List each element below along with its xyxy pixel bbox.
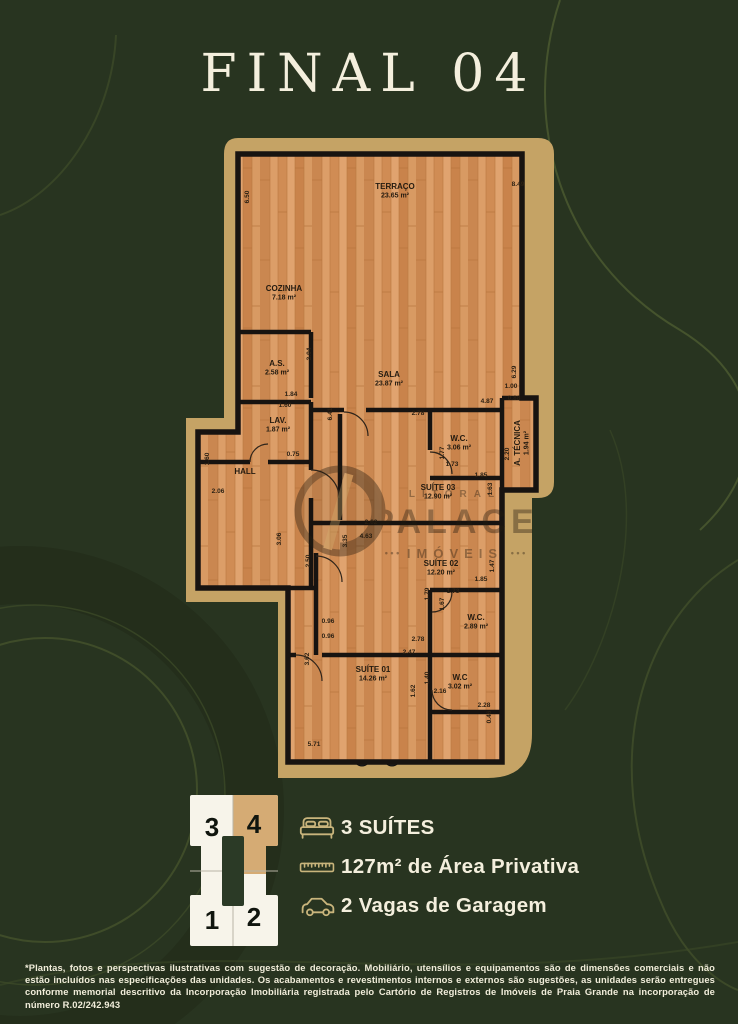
dimension-label: 5.71 bbox=[308, 741, 321, 748]
floor-plan-flyer: FINAL 04 bbox=[0, 0, 738, 1024]
dimension-label: 2.78 bbox=[412, 636, 425, 643]
dimension-label: 2.20 bbox=[504, 447, 511, 460]
dimension-label: 1.84 bbox=[285, 391, 298, 398]
dimension-label: 0.46 bbox=[486, 710, 493, 723]
feature-label: 2 Vagas de Garagem bbox=[341, 894, 547, 918]
dimension-label: 1.73 bbox=[447, 588, 460, 595]
dimension-label: 6.29 bbox=[511, 365, 518, 378]
watermark-brand-bottom: IMÓVEIS bbox=[407, 546, 503, 561]
dimension-label: 1.77 bbox=[439, 446, 446, 459]
bed-icon bbox=[299, 814, 341, 842]
room-label: HALL bbox=[234, 467, 255, 476]
dimension-label: 2.50 bbox=[305, 554, 312, 567]
dimension-label: 0.96 bbox=[322, 633, 335, 640]
dimension-label: 1.73 bbox=[446, 461, 459, 468]
feature-list: 3 SUÍTES 127m² de Área Privativa 2 Vag bbox=[299, 808, 579, 925]
unit-2-number: 2 bbox=[247, 902, 261, 932]
feature-label: 3 SUÍTES bbox=[341, 816, 435, 840]
dimension-label: 4.87 bbox=[481, 398, 494, 405]
dimension-label: 1.85 bbox=[475, 472, 488, 479]
dimension-label: 3.06 bbox=[276, 532, 283, 545]
unit-position-diagram: 3 4 1 2 bbox=[190, 795, 278, 946]
dimension-label: 6.50 bbox=[244, 190, 251, 203]
dimension-label: 2.28 bbox=[478, 702, 491, 709]
dimension-label: 1.60 bbox=[279, 402, 292, 409]
car-icon bbox=[299, 893, 341, 919]
feature-area: 127m² de Área Privativa bbox=[299, 847, 579, 886]
room-label: SALA23.87 m² bbox=[375, 370, 404, 388]
dimension-label: 8.49 bbox=[512, 181, 525, 188]
dimension-label: 1.00 bbox=[505, 383, 518, 390]
watermark-brand-top: LITORAL bbox=[409, 489, 501, 500]
page-title: FINAL 04 bbox=[0, 44, 738, 104]
watermark-dots-left: • • • bbox=[385, 548, 399, 558]
dimension-label: 0.96 bbox=[322, 618, 335, 625]
dimension-label: 0.88 bbox=[508, 395, 521, 402]
disclaimer-text: *Plantas, fotos e perspectivas ilustrati… bbox=[25, 962, 715, 1011]
dimension-label: 1.62 bbox=[410, 684, 417, 697]
unit-1-number: 1 bbox=[205, 905, 219, 935]
dimension-label: 3.04 bbox=[306, 347, 313, 360]
dimension-label: 1.40 bbox=[424, 671, 431, 684]
unit-4-number: 4 bbox=[247, 809, 262, 839]
dimension-label: 1.47 bbox=[489, 559, 496, 572]
dimension-label: 2.16 bbox=[434, 688, 447, 695]
dimension-label: 1.60 bbox=[204, 452, 211, 465]
room-label: TERRAÇO23.65 m² bbox=[375, 182, 415, 200]
dimension-label: 1.67 bbox=[439, 597, 446, 610]
feature-suites: 3 SUÍTES bbox=[299, 808, 579, 847]
ruler-icon bbox=[299, 859, 341, 875]
dimension-label: 3.62 bbox=[304, 652, 311, 665]
elevator-core bbox=[222, 836, 244, 906]
room-label: SUÍTE 0114.26 m² bbox=[356, 665, 391, 683]
dimension-label: 6.41 bbox=[327, 407, 334, 420]
apartment-plan: TERRAÇO23.65 m²COZINHA7.18 m²A.S.2.58 m²… bbox=[186, 138, 554, 778]
watermark-brand-main: PALACE bbox=[371, 503, 538, 541]
feature-garage: 2 Vagas de Garagem bbox=[299, 886, 579, 925]
unit-3-number: 3 bbox=[205, 812, 219, 842]
dimension-label: 2.78 bbox=[412, 410, 425, 417]
feature-label: 127m² de Área Privativa bbox=[341, 855, 579, 879]
dimension-label: 0.75 bbox=[287, 451, 300, 458]
room-label: SUÍTE 0212.20 m² bbox=[424, 559, 459, 577]
watermark-dots-right: • • • bbox=[511, 548, 525, 558]
dimension-label: 2.47 bbox=[403, 649, 416, 656]
dimension-label: 1.85 bbox=[475, 576, 488, 583]
dimension-label: 2.06 bbox=[212, 488, 225, 495]
dimension-label: 1.79 bbox=[424, 587, 431, 600]
